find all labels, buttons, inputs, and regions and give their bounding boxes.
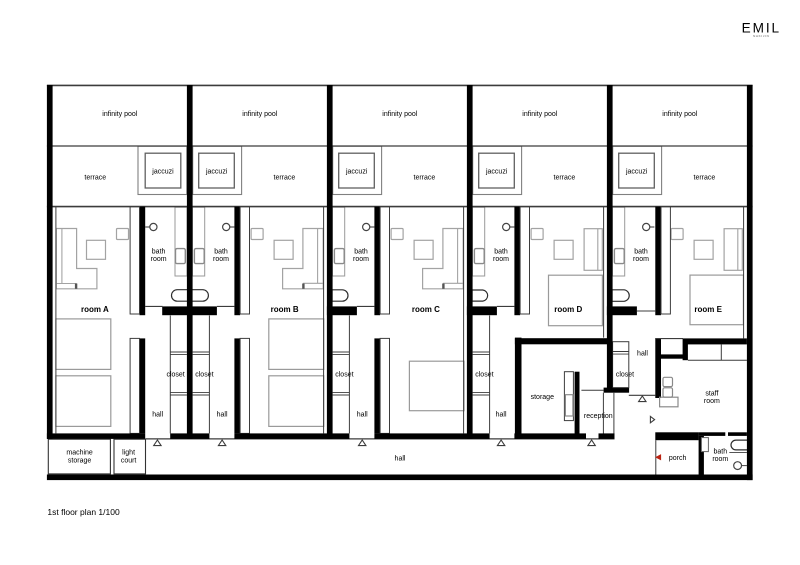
svg-text:court: court <box>121 457 137 464</box>
svg-text:room A: room A <box>81 305 109 314</box>
svg-text:closet: closet <box>616 371 634 378</box>
svg-text:room: room <box>213 256 229 263</box>
svg-text:room: room <box>353 256 369 263</box>
svg-text:hall: hall <box>637 351 648 358</box>
svg-text:closet: closet <box>166 371 184 378</box>
svg-text:machine: machine <box>66 449 93 456</box>
svg-text:room: room <box>151 256 167 263</box>
svg-text:terrace: terrace <box>274 175 296 182</box>
svg-text:storage: storage <box>531 394 554 401</box>
svg-text:hall: hall <box>357 411 368 418</box>
svg-text:infinity pool: infinity pool <box>242 111 277 118</box>
svg-text:bath: bath <box>214 249 228 256</box>
svg-text:hall: hall <box>395 456 406 463</box>
svg-text:storage: storage <box>68 457 91 464</box>
svg-text:terrace: terrace <box>554 175 576 182</box>
svg-text:porch: porch <box>669 455 687 462</box>
svg-text:closet: closet <box>475 371 493 378</box>
svg-text:room B: room B <box>271 305 299 314</box>
svg-text:jaccuzi: jaccuzi <box>205 168 228 175</box>
svg-text:light: light <box>122 449 135 456</box>
svg-text:jaccuzi: jaccuzi <box>345 168 368 175</box>
svg-text:room: room <box>704 398 720 405</box>
svg-text:room: room <box>633 256 649 263</box>
svg-text:1st floor plan 1/100: 1st floor plan 1/100 <box>47 507 120 517</box>
svg-text:infinity pool: infinity pool <box>662 111 697 118</box>
svg-text:jaccuzi: jaccuzi <box>485 168 508 175</box>
svg-text:terrace: terrace <box>694 175 716 182</box>
svg-text:hall: hall <box>496 411 507 418</box>
svg-text:bath: bath <box>713 448 727 455</box>
svg-text:bath: bath <box>634 249 648 256</box>
svg-text:room: room <box>493 256 509 263</box>
svg-text:closet: closet <box>195 371 213 378</box>
svg-text:infinity pool: infinity pool <box>522 111 557 118</box>
svg-text:bath: bath <box>494 249 508 256</box>
svg-text:infinity pool: infinity pool <box>382 111 417 118</box>
svg-text:closet: closet <box>335 371 353 378</box>
svg-text:terrace: terrace <box>414 175 436 182</box>
svg-text:terrace: terrace <box>84 175 106 182</box>
svg-text:infinity pool: infinity pool <box>102 111 137 118</box>
svg-text:jaccuzi: jaccuzi <box>151 168 174 175</box>
svg-text:room E: room E <box>694 305 722 314</box>
svg-text:NAKIJIN: NAKIJIN <box>753 34 769 38</box>
svg-text:hall: hall <box>217 411 228 418</box>
svg-text:reception: reception <box>584 413 613 420</box>
svg-text:bath: bath <box>152 249 166 256</box>
svg-text:hall: hall <box>152 411 163 418</box>
svg-text:staff: staff <box>705 390 718 397</box>
svg-text:jaccuzi: jaccuzi <box>625 168 648 175</box>
svg-text:bath: bath <box>354 249 368 256</box>
svg-text:room: room <box>712 456 728 463</box>
svg-text:room C: room C <box>412 305 440 314</box>
svg-text:room D: room D <box>554 305 582 314</box>
